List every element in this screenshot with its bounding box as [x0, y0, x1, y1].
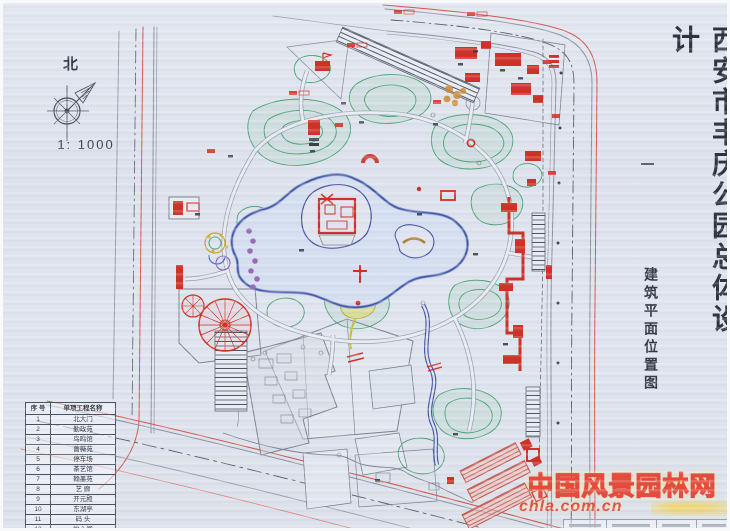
- legend-row: 3鸟鸣馆: [26, 435, 116, 445]
- legend-name: 鸟鸣馆: [51, 435, 116, 445]
- sheet-main-title: 西安市丰庆公园总体设计: [663, 25, 730, 341]
- legend-row: 5停车场: [26, 455, 116, 465]
- legend-row: 11码 头: [26, 515, 116, 525]
- legend-row: 8艺 廊: [26, 485, 116, 495]
- sheet-sub-title: 建筑平面位置图: [639, 267, 659, 417]
- legend-name: 勤政苑: [51, 425, 116, 435]
- legend-name: 翰墨苑: [51, 475, 116, 485]
- legend-row: 2勤政苑: [26, 425, 116, 435]
- legend-no: 7: [26, 475, 51, 485]
- legend-no: 2: [26, 425, 51, 435]
- legend-no: 12: [26, 525, 51, 531]
- legend-header-row: 序 号 单项工程名称: [26, 403, 116, 415]
- legend-no: 6: [26, 465, 51, 475]
- scanned-park-masterplan-sheet: 北 1: 1000 西安市丰庆公园总体设计 建筑平面位置图 序 号 单项工程名称…: [0, 0, 730, 531]
- legend-row: 6茶艺馆: [26, 465, 116, 475]
- legend-no: 3: [26, 435, 51, 445]
- legend-col-no: 序 号: [26, 403, 51, 415]
- legend-col-name: 单项工程名称: [51, 403, 116, 415]
- legend-name: 停车场: [51, 455, 116, 465]
- legend-no: 9: [26, 495, 51, 505]
- drawing-title-block: [563, 519, 730, 531]
- legend-no: 8: [26, 485, 51, 495]
- legend-name: 码 头: [51, 515, 116, 525]
- scale-label: 1: 1000: [47, 137, 125, 152]
- legend-name: 北大门: [51, 415, 116, 425]
- legend-name: 怡心阁: [51, 525, 116, 531]
- compass-rose-icon: [47, 83, 95, 141]
- title-separator-dash: [641, 163, 654, 165]
- north-label: 北: [63, 53, 79, 74]
- watermark-site-url: chla.com.cn: [519, 498, 622, 516]
- legend-name: 艺 廊: [51, 485, 116, 495]
- legend-no: 5: [26, 455, 51, 465]
- legend-row: 9开元殿: [26, 495, 116, 505]
- legend-no: 11: [26, 515, 51, 525]
- legend-no: 1: [26, 415, 51, 425]
- legend-name: 东湖亭: [51, 505, 116, 515]
- legend-row: 7翰墨苑: [26, 475, 116, 485]
- legend-row: 10东湖亭: [26, 505, 116, 515]
- building-legend-table: 序 号 单项工程名称 1北大门 2勤政苑 3鸟鸣馆 4蔷薇苑 5停车场 6茶艺馆…: [25, 402, 116, 531]
- legend-name: 蔷薇苑: [51, 445, 116, 455]
- legend-no: 4: [26, 445, 51, 455]
- legend-name: 茶艺馆: [51, 465, 116, 475]
- legend-row: 4蔷薇苑: [26, 445, 116, 455]
- legend-name: 开元殿: [51, 495, 116, 505]
- legend-row: 1北大门: [26, 415, 116, 425]
- legend-row: 12怡心阁: [26, 525, 116, 531]
- legend-no: 10: [26, 505, 51, 515]
